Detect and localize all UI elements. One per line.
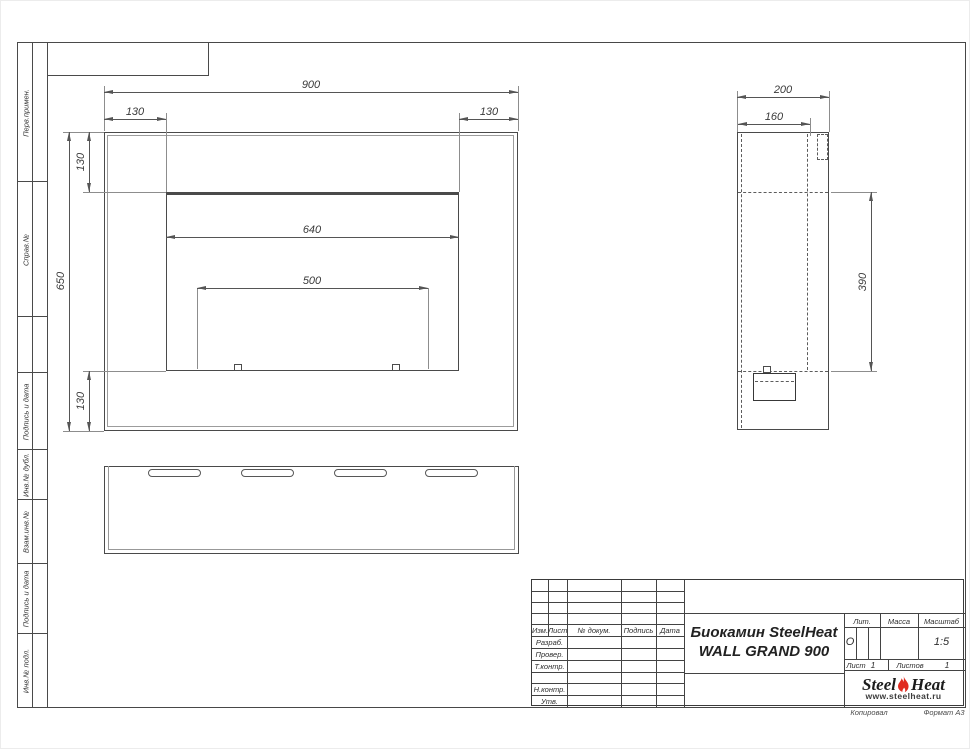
margin-label: Справ.№ xyxy=(22,233,31,265)
scale-label: Масштаб xyxy=(918,617,965,626)
grid-line xyxy=(684,673,844,674)
dim-label-burner-width: 500 xyxy=(282,275,342,287)
grid-line xyxy=(532,636,684,637)
grid-line xyxy=(532,695,684,696)
bottom-panel-inner-edge xyxy=(108,466,515,550)
hidden-line xyxy=(755,381,794,382)
dim-front-right-offset xyxy=(459,119,518,120)
margin-box-perv-primen: Перв.примен. xyxy=(17,42,48,183)
dim-label-front-height: 650 xyxy=(55,251,67,311)
extension-line xyxy=(166,113,167,192)
dim-front-width xyxy=(104,92,518,93)
dim-side-depth xyxy=(737,97,829,98)
divider-line xyxy=(32,500,33,564)
grid-line xyxy=(532,683,684,684)
hidden-line xyxy=(807,134,808,370)
grid-line xyxy=(621,580,622,707)
grid-line xyxy=(532,613,965,614)
grid-line xyxy=(868,627,869,659)
grid-line xyxy=(844,627,965,628)
dim-label-front-bottom-offset: 130 xyxy=(75,371,87,431)
steelheat-logo: Steel Heat www.steelheat.ru xyxy=(844,671,963,705)
lit-value: О xyxy=(844,636,856,648)
dim-side-inner-depth xyxy=(738,124,810,125)
grid-line xyxy=(532,648,684,649)
role-nkontr: Н.контр. xyxy=(532,685,567,694)
dim-label-front-width: 900 xyxy=(281,79,341,91)
margin-box-empty xyxy=(17,316,48,374)
grid-line xyxy=(856,627,857,659)
copied-label: Копировал xyxy=(829,708,909,717)
dim-label-front-top-offset: 130 xyxy=(75,132,87,192)
role-utv: Утв. xyxy=(532,697,567,706)
rev-header-izm: Изм. xyxy=(532,626,548,635)
format-label: Формат А3 xyxy=(904,708,970,717)
dim-label-side-opening-height: 390 xyxy=(857,252,869,312)
extension-line xyxy=(459,113,460,192)
dim-front-left-offset xyxy=(104,119,166,120)
rev-header-doc: № докум. xyxy=(567,626,621,635)
margin-box-podpis-data-1: Подпись и дата xyxy=(17,372,48,451)
dim-burner-width xyxy=(197,288,428,289)
hidden-line xyxy=(738,192,828,193)
sheet-label: Лист xyxy=(844,661,868,670)
dim-label-front-left-offset: 130 xyxy=(105,106,165,118)
dim-front-top-offset xyxy=(89,132,90,192)
dim-front-height xyxy=(69,132,70,431)
grid-line xyxy=(888,659,889,670)
divider-line xyxy=(32,450,33,500)
divider-line xyxy=(32,373,33,450)
burner-box-tab xyxy=(763,366,771,373)
divider-line xyxy=(32,564,33,634)
hidden-line xyxy=(738,371,828,372)
vent-slot-2 xyxy=(241,469,294,477)
vent-slot-3 xyxy=(334,469,387,477)
hidden-line xyxy=(741,134,742,428)
margin-box-inv-dubl: Инв.№ дубл. xyxy=(17,449,48,501)
margin-box-sprav-no: Справ.№ xyxy=(17,181,48,318)
mount-bracket-slot xyxy=(817,134,828,160)
dim-label-opening-width: 640 xyxy=(282,224,342,236)
burner-box xyxy=(753,373,796,401)
role-prover: Провер. xyxy=(532,650,567,659)
margin-label: Перв.примен. xyxy=(22,89,31,137)
doc-title-line2: WALL GRAND 900 xyxy=(684,643,844,660)
divider-line xyxy=(32,634,33,707)
dim-label-front-right-offset: 130 xyxy=(459,106,519,118)
title-block: Изм. Лист № докум. Подпись Дата Разраб. … xyxy=(531,579,964,706)
rev-header-list: Лист xyxy=(548,626,567,635)
burner-tab-right xyxy=(392,364,400,371)
margin-box-inv-podl: Инв.№ подл. xyxy=(17,633,48,708)
rev-header-date: Дата xyxy=(656,626,684,635)
grid-line xyxy=(532,591,684,592)
extension-line xyxy=(83,371,166,372)
grid-line xyxy=(532,660,684,661)
margin-label: Подпись и дата xyxy=(22,383,31,440)
margin-box-podpis-data-2: Подпись и дата xyxy=(17,563,48,635)
margin-label: Подпись и дата xyxy=(22,571,31,628)
top-left-stamp-box xyxy=(47,42,209,76)
vent-slot-4 xyxy=(425,469,478,477)
doc-title-line1: Биокамин SteelHeat xyxy=(684,624,844,641)
grid-line xyxy=(532,602,684,603)
extension-line xyxy=(831,371,877,372)
extension-line xyxy=(428,288,429,369)
role-tkontr: Т.контр. xyxy=(532,662,567,671)
extension-line xyxy=(829,91,830,132)
logo-url: www.steelheat.ru xyxy=(866,691,942,701)
grid-line xyxy=(532,672,684,673)
margin-label: Инв.№ подл. xyxy=(22,648,31,692)
sheets-label: Листов xyxy=(890,661,930,670)
burner-tab-left xyxy=(234,364,242,371)
rev-header-sign: Подпись xyxy=(621,626,656,635)
sheet-value: 1 xyxy=(866,660,880,670)
extension-line xyxy=(810,118,811,136)
margin-label: Инв.№ дубл. xyxy=(22,453,31,497)
dim-front-bottom-offset xyxy=(89,371,90,431)
grid-line xyxy=(532,624,684,625)
sheets-value: 1 xyxy=(940,660,954,670)
extension-line xyxy=(83,192,166,193)
margin-box-vzam-inv: Взам.инв.№ xyxy=(17,499,48,565)
mass-label: Масса xyxy=(880,617,918,626)
dim-opening-width xyxy=(166,237,459,238)
drawing-sheet: Перв.примен. Справ.№ Подпись и дата Инв.… xyxy=(0,0,970,749)
divider-line xyxy=(32,43,33,182)
dim-label-side-inner-depth: 160 xyxy=(744,111,804,123)
divider-line xyxy=(32,317,33,373)
margin-label: Взам.инв.№ xyxy=(22,511,31,553)
lit-label: Лит. xyxy=(844,617,880,626)
extension-line xyxy=(197,288,198,369)
dim-side-opening-height xyxy=(871,192,872,371)
role-razrab: Разраб. xyxy=(532,638,567,647)
divider-line xyxy=(32,182,33,317)
scale-value: 1:5 xyxy=(918,636,965,648)
grid-line xyxy=(656,580,657,707)
dim-label-side-depth: 200 xyxy=(753,84,813,96)
extension-line xyxy=(63,431,104,432)
vent-slot-1 xyxy=(148,469,201,477)
grid-line xyxy=(567,580,568,707)
